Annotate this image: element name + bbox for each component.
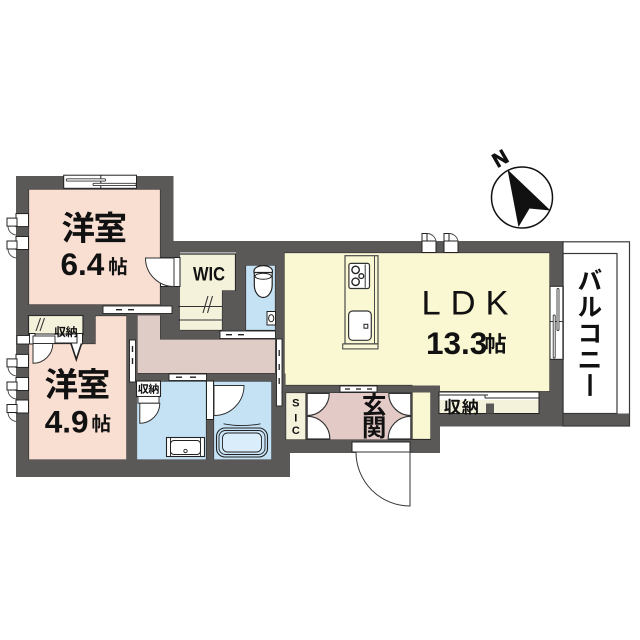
svg-text:WIC: WIC: [193, 263, 225, 285]
svg-text:I: I: [294, 412, 297, 424]
svg-text:LDK: LDK: [421, 284, 518, 322]
svg-text:6.4: 6.4: [61, 246, 105, 282]
svg-text:C: C: [292, 425, 300, 437]
svg-text:13.3: 13.3: [426, 325, 487, 361]
svg-text:S: S: [292, 398, 299, 410]
svg-text:4.9: 4.9: [45, 403, 89, 439]
